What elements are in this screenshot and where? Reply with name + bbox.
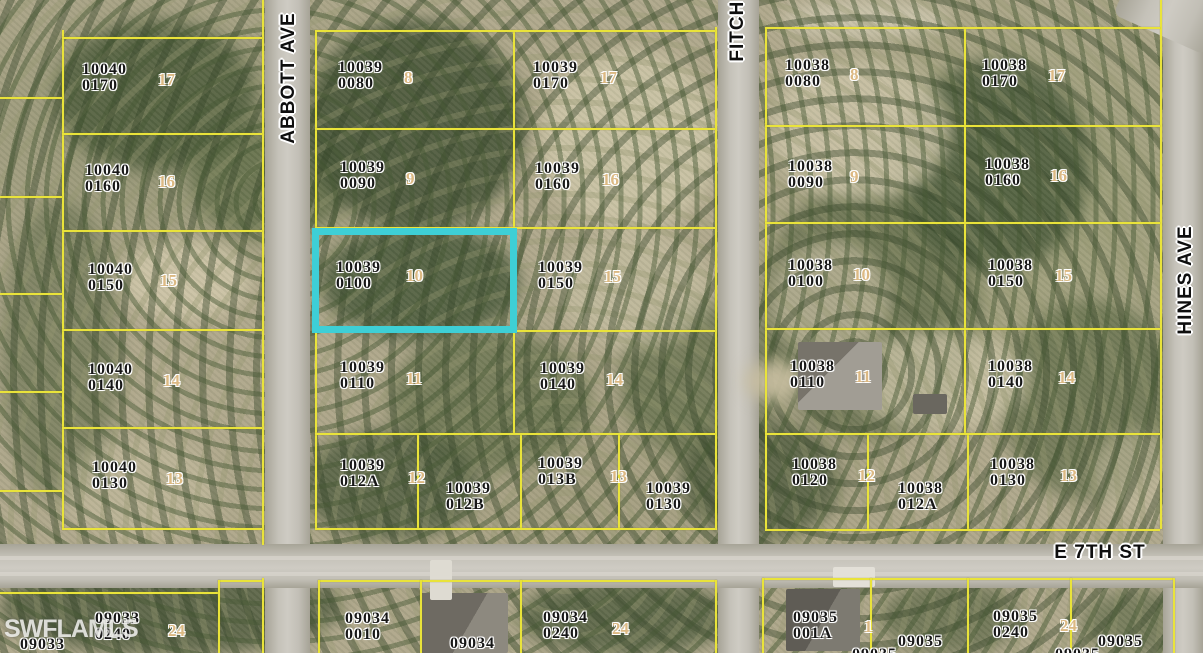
shed — [913, 394, 947, 414]
parcel-label: 100380150 — [988, 258, 1033, 290]
parcel-label: 100380170 — [982, 58, 1027, 90]
parcel-label: 100390150 — [538, 260, 583, 292]
lot-number: 15 — [604, 267, 621, 287]
parcel-boundary-line — [62, 133, 262, 135]
lot-number: 8 — [850, 65, 859, 85]
parcel-label: 09035001A — [793, 610, 838, 642]
parcel-boundary-line — [870, 578, 872, 653]
parcel-label: 100380100 — [788, 258, 833, 290]
parcel-boundary-line — [62, 30, 64, 530]
parcel-label: 090340010 — [345, 611, 390, 643]
parcel-label-partial: 09035 — [852, 647, 897, 653]
parcel-boundary-line — [315, 30, 715, 32]
parcel-boundary-line — [765, 125, 1160, 127]
parcel-label-highlighted: 100390100 — [336, 260, 381, 292]
parcel-label: 10039013B — [538, 456, 583, 488]
lot-number: 16 — [158, 172, 175, 192]
mls-watermark: SWFLAMLS — [4, 615, 138, 644]
aerial-parcel-map: 100400170 100400160 100400150 100400140 … — [0, 0, 1203, 653]
parcel-boundary-line — [964, 27, 966, 433]
lot-number: 17 — [600, 68, 617, 88]
parcel-label-partial: 09035 — [1098, 634, 1143, 650]
lot-number: 10 — [406, 266, 423, 286]
parcel-label-partial: 09034 — [450, 636, 495, 652]
parcel-boundary-line — [0, 490, 62, 492]
parcel-boundary-line — [315, 433, 715, 435]
parcel-boundary-line — [520, 580, 522, 653]
parcel-boundary-line — [218, 580, 220, 653]
parcel-label: 100400170 — [82, 62, 127, 94]
parcel-boundary-line — [315, 128, 715, 130]
lot-number: 9 — [406, 169, 415, 189]
parcel-boundary-line — [420, 580, 422, 653]
lot-number: 13 — [166, 469, 183, 489]
parcel-boundary-line — [765, 27, 767, 529]
street-label-hines-ave: HINES AVE — [1175, 225, 1197, 334]
parcel-label: 100390110 — [340, 360, 385, 392]
lot-number: 9 — [850, 167, 859, 187]
parcel-label: 100380110 — [790, 359, 835, 391]
parcel-label: 100380090 — [788, 159, 833, 191]
lot-number: 14 — [606, 370, 623, 390]
parcel-boundary-line — [520, 433, 522, 528]
parcel-label: 100400150 — [88, 262, 133, 294]
parcel-boundary-line — [765, 529, 1160, 531]
parcel-label-partial: 09035 — [1055, 647, 1100, 653]
driveway — [833, 567, 875, 587]
parcel-boundary-line — [1173, 578, 1175, 653]
parcel-label: 100380160 — [985, 157, 1030, 189]
parcel-label: 100400130 — [92, 460, 137, 492]
parcel-label: 10039012B — [446, 481, 491, 513]
tire-track — [0, 556, 1203, 560]
parcel-boundary-line — [967, 433, 969, 529]
parcel-label: 090350240 — [993, 609, 1038, 641]
parcel-label: 100380120 — [792, 457, 837, 489]
parcel-boundary-line — [967, 578, 969, 653]
parcel-label: 100380140 — [988, 359, 1033, 391]
lot-number: 11 — [406, 369, 422, 389]
lot-number: 12 — [408, 468, 425, 488]
parcel-label: 10039012A — [340, 458, 385, 490]
parcel-boundary-line — [0, 293, 62, 295]
lot-number: 24 — [168, 621, 185, 641]
parcel-boundary-line — [0, 592, 218, 594]
parcel-label: 100400140 — [88, 362, 133, 394]
lot-number: 13 — [610, 467, 627, 487]
lot-number: 14 — [1058, 368, 1075, 388]
parcel-label: 090340240 — [543, 610, 588, 642]
lot-number: 11 — [855, 367, 871, 387]
parcel-label: 100380130 — [990, 457, 1035, 489]
lot-number: 13 — [1060, 466, 1077, 486]
lot-number: 12 — [858, 466, 875, 486]
parcel-label: 100390160 — [535, 161, 580, 193]
parcel-boundary-line — [762, 578, 764, 653]
parcel-boundary-line — [218, 580, 264, 582]
parcel-boundary-line — [62, 528, 262, 530]
parcel-boundary-line — [765, 222, 1160, 224]
parcel-label: 100390130 — [646, 481, 691, 513]
lot-number: 10 — [853, 265, 870, 285]
parcel-boundary-line — [62, 37, 262, 39]
parcel-boundary-line — [0, 196, 62, 198]
parcel-boundary-line — [715, 580, 717, 653]
lot-number: 15 — [1055, 266, 1072, 286]
parcel-boundary-line — [318, 580, 717, 582]
parcel-boundary-line — [765, 328, 1160, 330]
parcel-boundary-line — [1160, 0, 1162, 529]
parcel-label: 100380080 — [785, 58, 830, 90]
parcel-boundary-line — [62, 329, 262, 331]
parcel-boundary-line — [62, 230, 262, 232]
lot-number: 14 — [163, 371, 180, 391]
parcel-boundary-line — [0, 391, 62, 393]
parcel-boundary-line — [262, 0, 264, 545]
street-label-abbott-ave: ABBOTT AVE — [278, 12, 300, 143]
lot-number: 8 — [404, 68, 413, 88]
lot-number: 24 — [612, 619, 629, 639]
parcel-label: 100390090 — [340, 160, 385, 192]
lot-number: 17 — [158, 70, 175, 90]
tire-track — [0, 572, 1203, 576]
lot-number: 17 — [1048, 66, 1065, 86]
lot-number: 16 — [602, 170, 619, 190]
parcel-label: 100390140 — [540, 361, 585, 393]
parcel-boundary-line — [318, 580, 320, 653]
parcel-boundary-line — [315, 528, 715, 530]
lot-number: 24 — [1060, 616, 1077, 636]
parcel-label-partial: 09035 — [898, 634, 943, 650]
parcel-label: 100400160 — [85, 163, 130, 195]
parcel-label: 100390170 — [533, 60, 578, 92]
street-label-e-7th-st: E 7TH ST — [1054, 542, 1145, 564]
parcel-boundary-line — [715, 27, 717, 530]
lot-number: 1 — [864, 617, 873, 637]
parcel-boundary-line — [62, 427, 262, 429]
lot-number: 16 — [1050, 166, 1067, 186]
parcel-boundary-line — [765, 27, 1160, 29]
parcel-label: 10038012A — [898, 481, 943, 513]
parcel-boundary-line — [765, 433, 1160, 435]
parcel-boundary-line — [0, 97, 62, 99]
parcel-label: 100390080 — [338, 60, 383, 92]
lot-number: 15 — [160, 271, 177, 291]
parcel-boundary-line — [262, 578, 264, 653]
street-label-fitch-ave: FITCH AVE — [727, 0, 749, 62]
